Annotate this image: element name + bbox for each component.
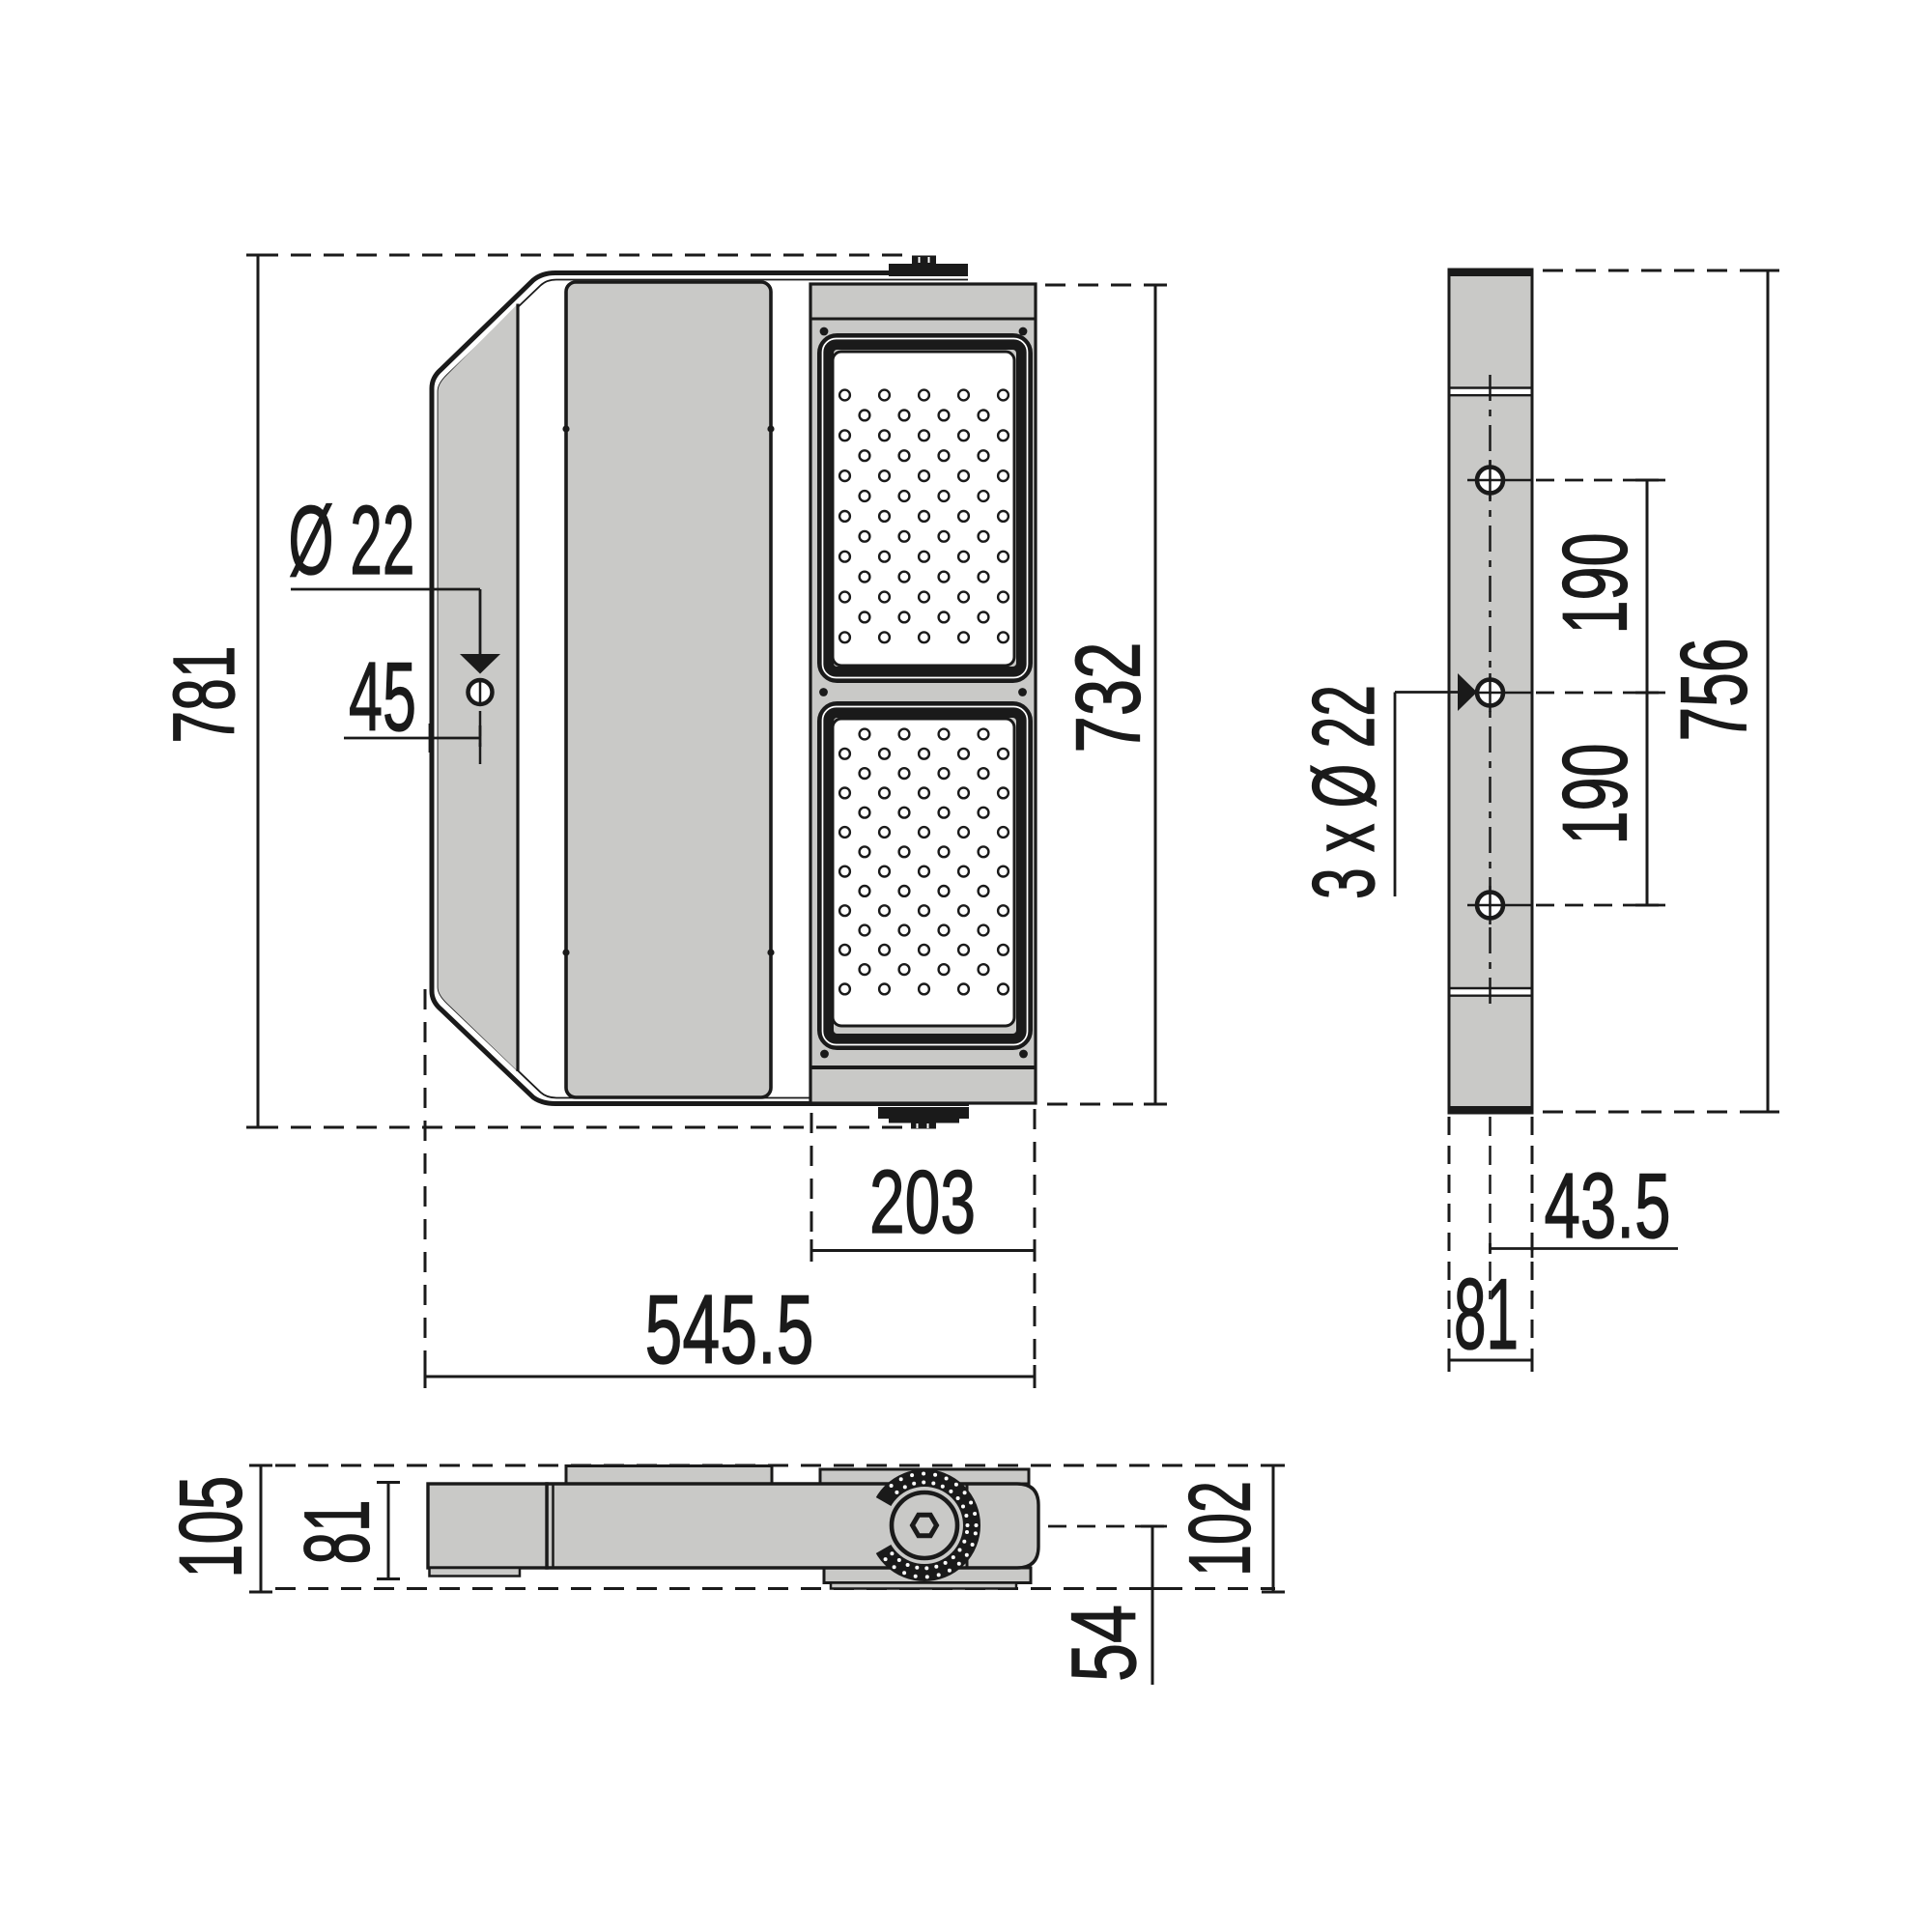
- svg-text:732: 732: [1058, 642, 1160, 753]
- svg-text:45: 45: [349, 643, 416, 752]
- svg-text:190: 190: [1545, 744, 1647, 845]
- svg-text:81: 81: [1454, 1259, 1519, 1371]
- svg-text:81: 81: [285, 1500, 388, 1565]
- svg-text:3 x Ø 22: 3 x Ø 22: [1295, 685, 1393, 899]
- svg-text:756: 756: [1661, 639, 1766, 742]
- svg-text:105: 105: [161, 1476, 260, 1578]
- svg-text:102: 102: [1172, 1481, 1268, 1577]
- svg-text:54: 54: [1053, 1605, 1155, 1682]
- svg-text:43.5: 43.5: [1545, 1154, 1671, 1258]
- svg-text:190: 190: [1545, 533, 1647, 635]
- svg-text:545.5: 545.5: [645, 1276, 814, 1384]
- svg-text:203: 203: [869, 1151, 976, 1252]
- svg-text:Ø 22: Ø 22: [289, 487, 415, 595]
- svg-text:781: 781: [156, 646, 253, 744]
